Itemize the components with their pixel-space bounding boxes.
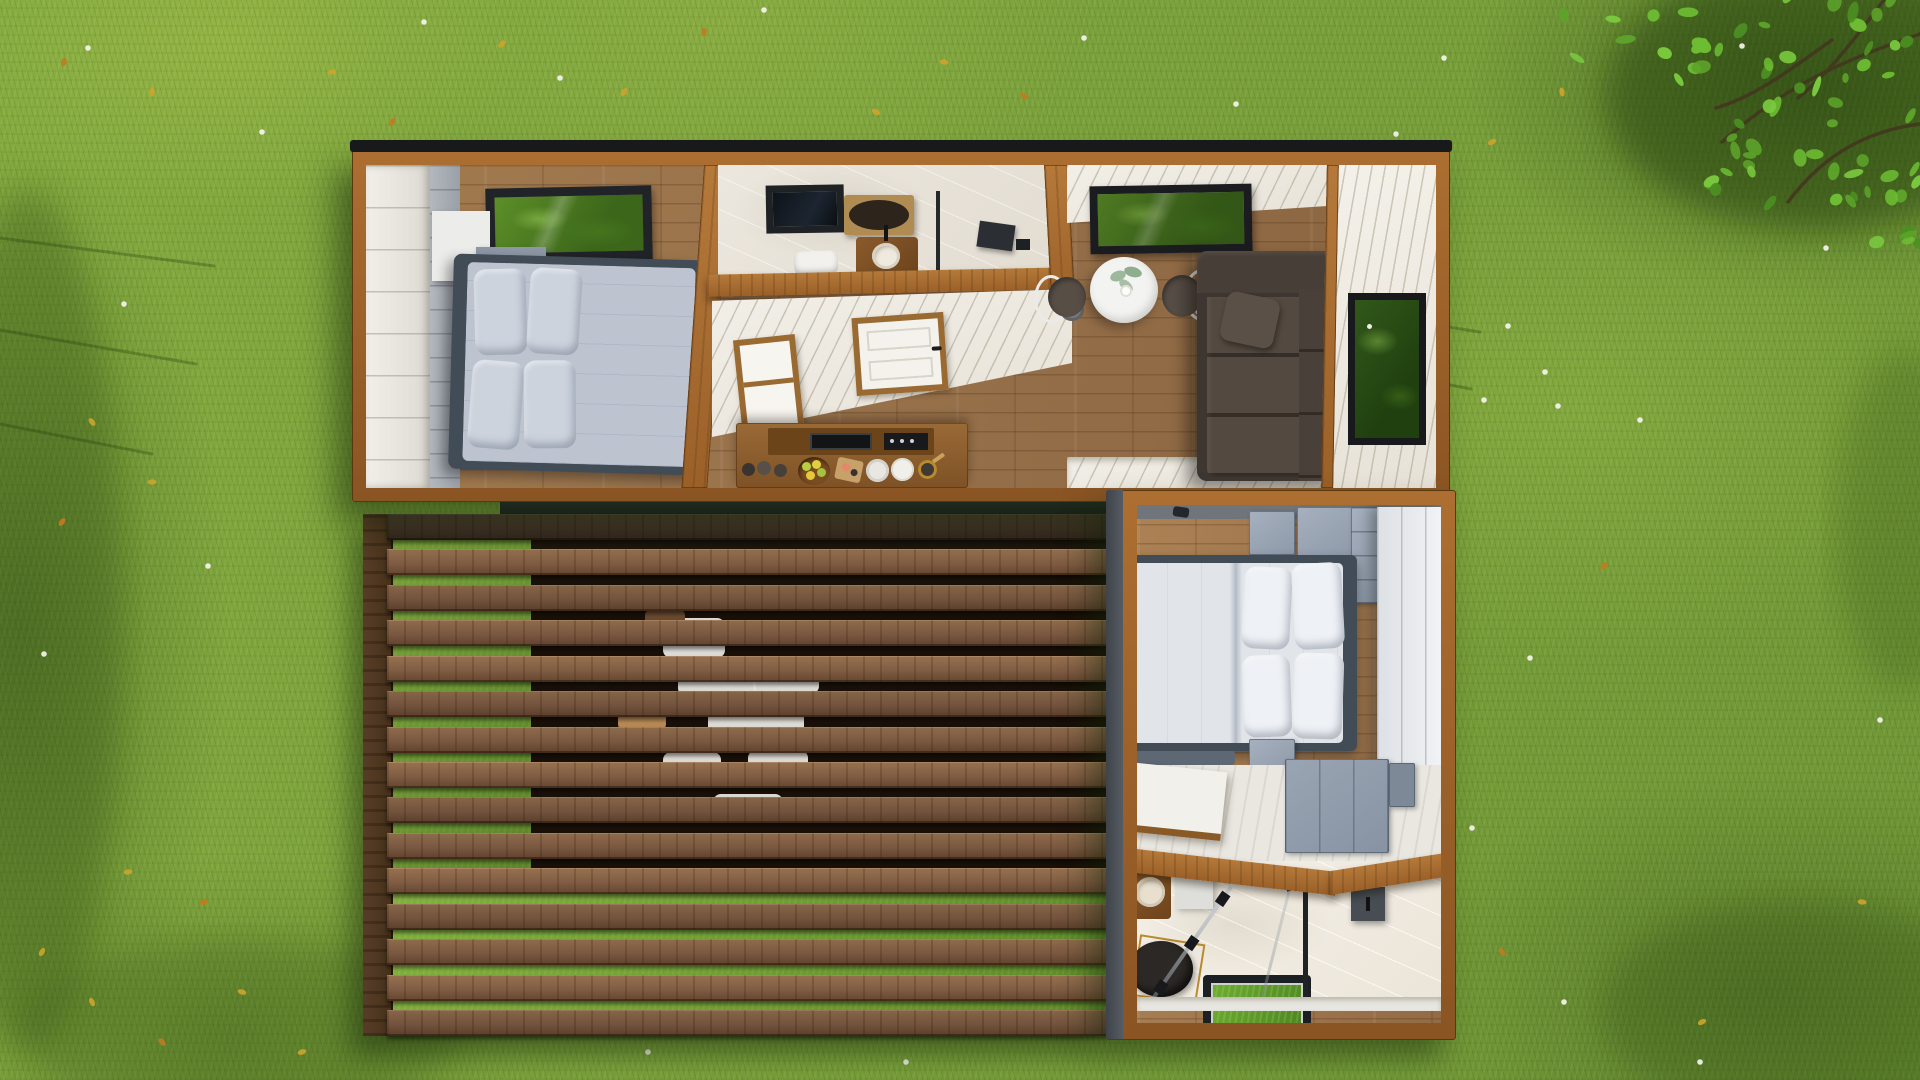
shower-rail bbox=[936, 191, 940, 275]
nook-desk bbox=[1137, 762, 1227, 841]
pergola-slat bbox=[387, 656, 1108, 682]
bed-foot-bench bbox=[1137, 751, 1235, 765]
bathroom-sink bbox=[856, 237, 918, 275]
pergola-slat bbox=[387, 939, 1108, 965]
table-plant bbox=[1108, 265, 1144, 301]
shower-soap-shelf bbox=[1016, 239, 1030, 250]
entry-door bbox=[851, 312, 948, 396]
kitchen-counter bbox=[736, 423, 968, 488]
pergola-slat bbox=[387, 727, 1108, 753]
counter-jars bbox=[742, 459, 794, 483]
pergola-slat bbox=[387, 1010, 1108, 1036]
pergola-slats bbox=[363, 514, 1108, 1036]
fruit-bowl bbox=[798, 457, 830, 485]
pergola-deck bbox=[363, 514, 1108, 1036]
pergola-slat bbox=[387, 868, 1108, 894]
dining-skylight bbox=[1089, 184, 1252, 255]
shower-head bbox=[976, 221, 1015, 252]
bedroom-closet bbox=[366, 165, 430, 488]
main-house-module bbox=[352, 148, 1450, 502]
pergola-slat bbox=[387, 514, 1108, 540]
pergola-slat bbox=[387, 762, 1108, 788]
bed-main bbox=[448, 254, 704, 476]
living-window bbox=[1348, 293, 1426, 445]
pergola-slat bbox=[387, 691, 1108, 717]
annex-roof-band bbox=[1106, 490, 1123, 1039]
dining-table bbox=[1090, 257, 1158, 323]
pergola-slat bbox=[387, 549, 1108, 575]
pergola-slat bbox=[387, 797, 1108, 823]
door-handle bbox=[932, 346, 942, 351]
pergola-slat bbox=[387, 904, 1108, 930]
pergola-slat bbox=[387, 833, 1108, 859]
bathroom-skylight bbox=[766, 184, 845, 233]
dining-chair-left bbox=[1042, 271, 1088, 323]
annex-module bbox=[1106, 490, 1456, 1040]
cutting-board bbox=[834, 457, 864, 484]
roof-edge-strip bbox=[350, 140, 1452, 152]
bathroom-mirror bbox=[844, 195, 914, 235]
plate-stack bbox=[866, 459, 889, 482]
pergola-slat bbox=[387, 975, 1108, 1001]
aerial-render-stage bbox=[0, 0, 1920, 1080]
ceiling-fan bbox=[1172, 506, 1189, 518]
annex-south-sill bbox=[1137, 997, 1441, 1011]
cooktop-controls bbox=[884, 433, 928, 450]
annex-wall-cabinet bbox=[1351, 887, 1385, 921]
bed-annex bbox=[1137, 555, 1357, 751]
nook-side-box bbox=[1389, 763, 1415, 807]
annex-cabinet-1 bbox=[1249, 511, 1295, 555]
pergola-slat bbox=[387, 620, 1108, 646]
oven-glass bbox=[810, 433, 872, 450]
annex-shower-column bbox=[1303, 881, 1308, 1003]
plate bbox=[891, 458, 914, 481]
nook-cabinet bbox=[1285, 759, 1389, 853]
pergola-slat bbox=[387, 585, 1108, 611]
annex-cabinet-2 bbox=[1297, 507, 1353, 559]
sofa-cushion bbox=[1218, 290, 1281, 350]
pan bbox=[918, 460, 937, 479]
